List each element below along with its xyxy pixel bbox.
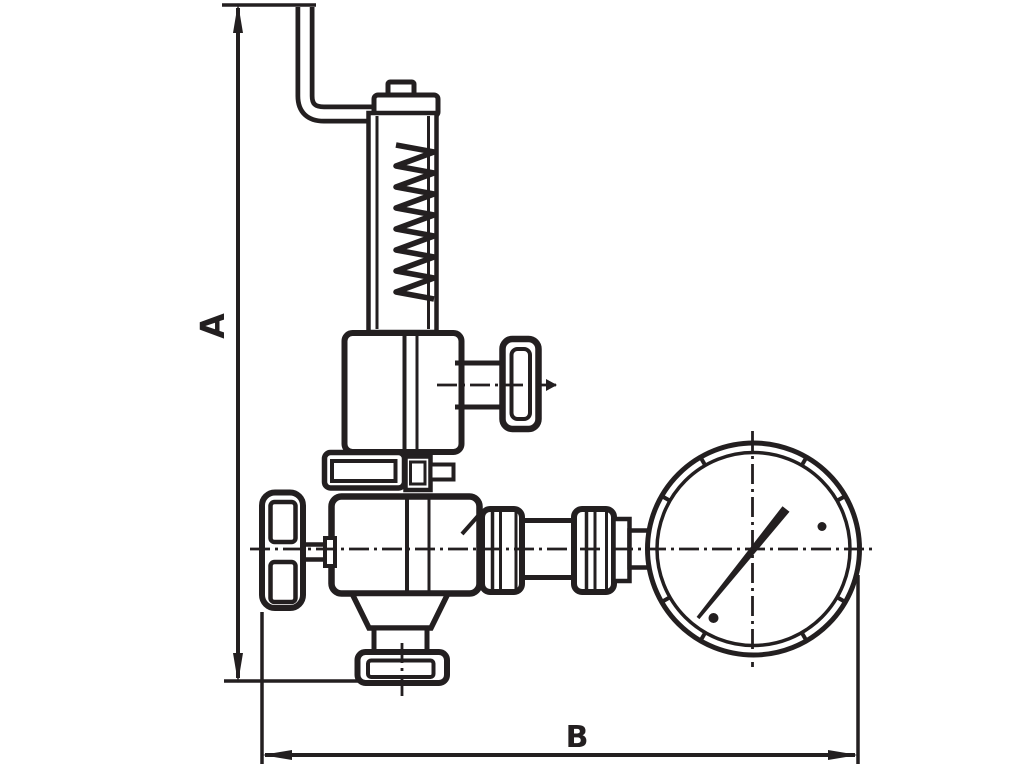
handwheel-stem-collar [325, 538, 335, 566]
outlet-neck [374, 628, 427, 652]
body-skirt [352, 594, 448, 629]
valve-assembly [250, 7, 876, 697]
dimension-b-label: B [566, 720, 589, 755]
dimension-a-arrow-bottom [233, 653, 243, 683]
union-connector [431, 465, 454, 480]
dimension-b-arrow-right [828, 750, 858, 760]
valve-technical-drawing: A B [0, 0, 1024, 766]
dimension-a-arrow-top [233, 3, 243, 33]
valve-body [332, 497, 480, 684]
gauge-piping [482, 509, 650, 592]
gauge-pivot-dot [709, 613, 719, 623]
gauge-screw-dot [818, 522, 827, 531]
spring-housing [369, 113, 437, 332]
dimension-b-arrow-left [262, 750, 292, 760]
drawing-stage: A B [0, 0, 1024, 766]
bonnet [345, 333, 462, 452]
union [325, 453, 454, 491]
dimension-a-label: A [193, 313, 232, 339]
